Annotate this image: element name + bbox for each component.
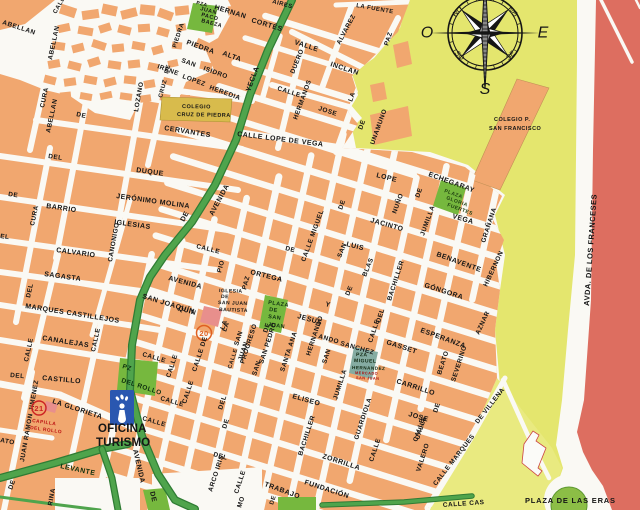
svg-text:SAN JUAN: SAN JUAN — [218, 300, 248, 307]
svg-text:CRUZ DE PIEDRA: CRUZ DE PIEDRA — [177, 112, 231, 119]
svg-text:DE: DE — [8, 191, 19, 199]
svg-text:PLAZA DE LAS ERAS: PLAZA DE LAS ERAS — [525, 496, 616, 505]
svg-text:MIGUEL: MIGUEL — [354, 358, 377, 365]
svg-text:DE: DE — [269, 307, 278, 314]
svg-text:COLEGIO P.: COLEGIO P. — [494, 117, 530, 123]
svg-text:SAN FRANCISCO: SAN FRANCISCO — [489, 126, 542, 132]
svg-text:TURISMO: TURISMO — [96, 437, 150, 449]
svg-text:MERCADO: MERCADO — [355, 371, 378, 376]
svg-text:21: 21 — [34, 404, 43, 413]
svg-text:E: E — [538, 25, 549, 42]
svg-text:EL: EL — [0, 233, 10, 241]
svg-text:COLEGIO: COLEGIO — [182, 104, 211, 111]
svg-text:O: O — [421, 25, 433, 42]
svg-text:BAUTISTA: BAUTISTA — [219, 307, 248, 314]
svg-text:S: S — [480, 81, 491, 98]
svg-text:SAN JUAN: SAN JUAN — [356, 376, 380, 381]
svg-text:DEL: DEL — [10, 372, 25, 380]
svg-text:OFICINA: OFICINA — [98, 423, 147, 435]
